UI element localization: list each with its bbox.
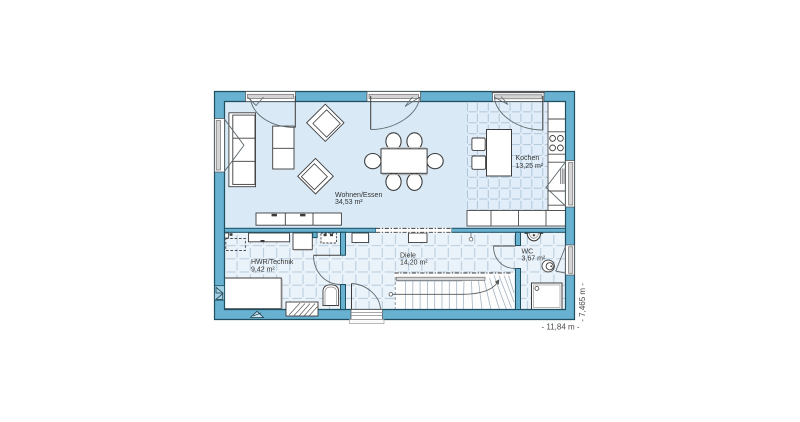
svg-text:Kochen: Kochen bbox=[516, 155, 540, 162]
svg-text:9,42 m²: 9,42 m² bbox=[251, 267, 275, 274]
svg-text:Diele: Diele bbox=[400, 252, 416, 259]
svg-text:HWR/Technik: HWR/Technik bbox=[251, 259, 294, 266]
svg-text:Wohnen/Essen: Wohnen/Essen bbox=[335, 192, 382, 199]
svg-text:- 11,84 m -: - 11,84 m - bbox=[541, 323, 579, 332]
svg-text:- 7,465 m -: - 7,465 m - bbox=[578, 283, 587, 322]
svg-text:14,20 m²: 14,20 m² bbox=[400, 260, 428, 267]
svg-text:3,67 m²: 3,67 m² bbox=[522, 255, 546, 262]
svg-text:34,53 m²: 34,53 m² bbox=[335, 199, 363, 206]
svg-text:13,25 m²: 13,25 m² bbox=[516, 163, 544, 170]
